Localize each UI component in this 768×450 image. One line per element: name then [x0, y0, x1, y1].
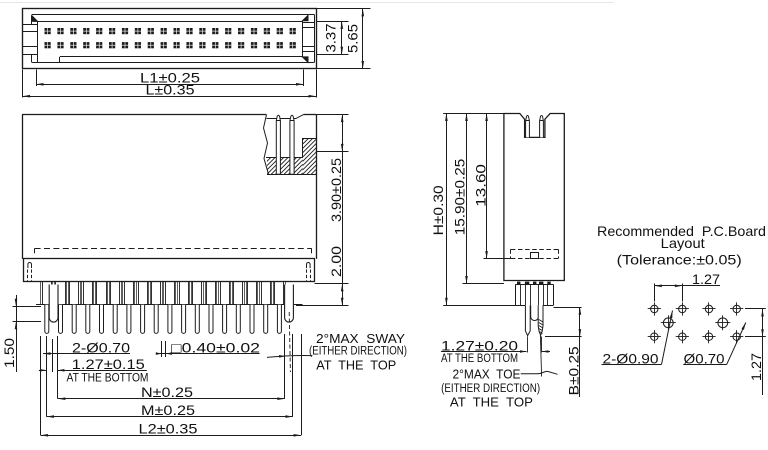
svg-text:L2±0.35: L2±0.35	[139, 422, 198, 437]
svg-text:13.60: 13.60	[474, 164, 489, 207]
svg-text:AT THE BOTTOM: AT THE BOTTOM	[441, 351, 518, 365]
svg-text:1.27: 1.27	[749, 353, 764, 381]
svg-text:N±0.25: N±0.25	[141, 385, 193, 400]
svg-text:AT THE BOTTOM: AT THE BOTTOM	[67, 371, 149, 385]
svg-text:H±0.30: H±0.30	[431, 185, 446, 235]
svg-text:5.65: 5.65	[346, 24, 361, 53]
svg-text:AT THE TOP: AT THE TOP	[316, 358, 396, 373]
svg-text:Layout: Layout	[661, 235, 705, 251]
svg-text:3.37: 3.37	[323, 24, 338, 53]
svg-text:L±0.35: L±0.35	[146, 83, 195, 98]
svg-text:15.90±0.25: 15.90±0.25	[452, 159, 467, 236]
svg-text:AT THE TOP: AT THE TOP	[450, 395, 533, 410]
svg-text:1.50: 1.50	[2, 338, 17, 368]
svg-text:(Tolerance:±0.05): (Tolerance:±0.05)	[617, 251, 742, 267]
svg-text:(EITHER DIRECTION): (EITHER DIRECTION)	[441, 381, 540, 395]
svg-text:M±0.25: M±0.25	[141, 403, 195, 418]
svg-text:1.27: 1.27	[692, 272, 720, 287]
svg-text:2.00: 2.00	[329, 245, 344, 277]
svg-text:(EITHER DIRECTION): (EITHER DIRECTION)	[309, 343, 407, 357]
svg-text:2°MAX TOE: 2°MAX TOE	[453, 367, 521, 382]
svg-text:B±0.25: B±0.25	[567, 346, 582, 395]
svg-text:3.90±0.25: 3.90±0.25	[329, 158, 344, 222]
